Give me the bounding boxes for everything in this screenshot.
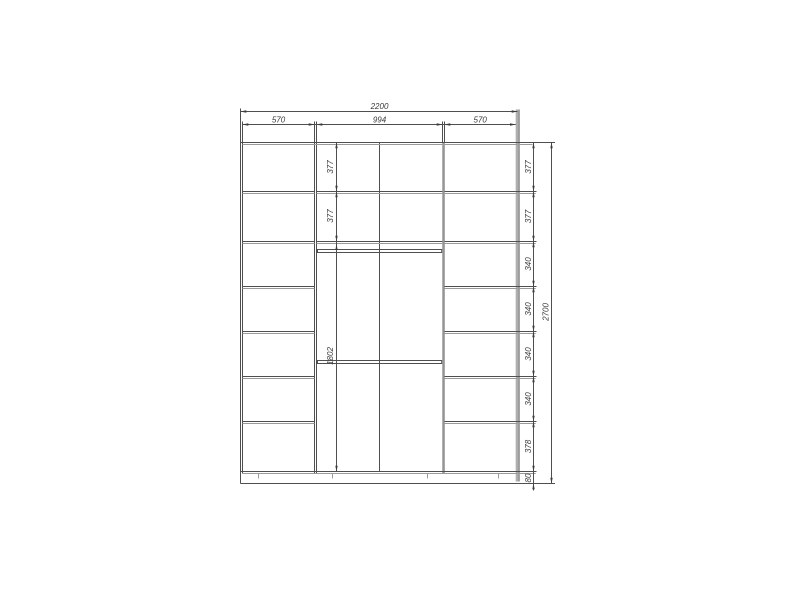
svg-text:340: 340 (524, 257, 533, 271)
svg-text:2700: 2700 (542, 303, 551, 322)
svg-text:994: 994 (373, 116, 387, 125)
svg-text:377: 377 (326, 209, 335, 223)
svg-text:377: 377 (524, 160, 533, 174)
svg-text:80: 80 (524, 473, 533, 482)
svg-text:340: 340 (524, 302, 533, 316)
svg-text:570: 570 (474, 116, 488, 125)
svg-text:1802: 1802 (326, 347, 335, 365)
svg-text:340: 340 (524, 347, 533, 361)
svg-text:377: 377 (326, 160, 335, 174)
svg-text:2200: 2200 (370, 102, 389, 111)
svg-text:340: 340 (524, 392, 533, 406)
svg-text:377: 377 (524, 209, 533, 223)
svg-text:378: 378 (524, 439, 533, 453)
svg-text:570: 570 (272, 116, 286, 125)
